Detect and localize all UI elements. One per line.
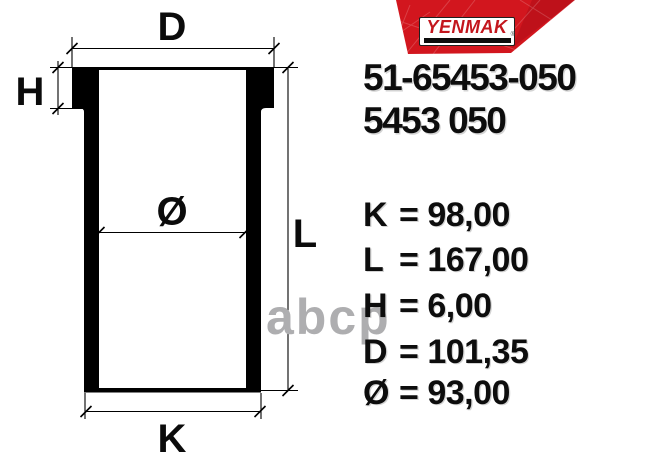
dim-label-bore: Ø: [156, 190, 187, 234]
part-number-secondary: 5453 050: [363, 102, 505, 139]
registered-trademark-icon: ®: [511, 32, 515, 38]
spec-label: L: [363, 242, 390, 278]
spec-label: Ø: [363, 375, 390, 411]
spec-value: 93,00: [427, 375, 510, 411]
equals-sign: =: [399, 334, 418, 370]
equals-sign: =: [399, 375, 418, 411]
dim-label-l: L: [293, 212, 317, 256]
dim-label-h: H: [16, 70, 45, 114]
spec-value: 6,00: [427, 288, 491, 324]
part-number-primary: 51-65453-050: [363, 59, 575, 96]
spec-row-l: L = 167,00: [363, 242, 528, 278]
spec-label: H: [363, 288, 390, 324]
equals-sign: =: [399, 242, 418, 278]
equals-sign: =: [399, 197, 418, 233]
product-spec-image: YENMAK ® D H Ø L K abcp 51-65453-050 545…: [0, 0, 650, 457]
spec-value: 167,00: [427, 242, 528, 278]
dim-label-d: D: [158, 5, 187, 49]
liner-left-wall: [72, 67, 99, 388]
spec-row-d: D = 101,35: [363, 334, 528, 370]
liner-bottom-edge: [84, 388, 261, 393]
spec-label: K: [363, 197, 390, 233]
spec-label: D: [363, 334, 390, 370]
brand-logo-underline: [424, 38, 511, 43]
spec-row-k: K = 98,00: [363, 197, 510, 233]
spec-row-bore: Ø = 93,00: [363, 375, 510, 411]
spec-row-h: H = 6,00: [363, 288, 492, 324]
spec-value: 101,35: [427, 334, 528, 370]
spec-value: 98,00: [427, 197, 510, 233]
brand-logo: YENMAK ®: [419, 17, 515, 46]
liner-top-edge: [72, 67, 274, 70]
cylinder-liner-drawing: D H Ø L K: [0, 0, 340, 457]
equals-sign: =: [399, 288, 418, 324]
brand-logo-text: YENMAK: [420, 18, 514, 37]
dim-label-k: K: [158, 417, 187, 457]
